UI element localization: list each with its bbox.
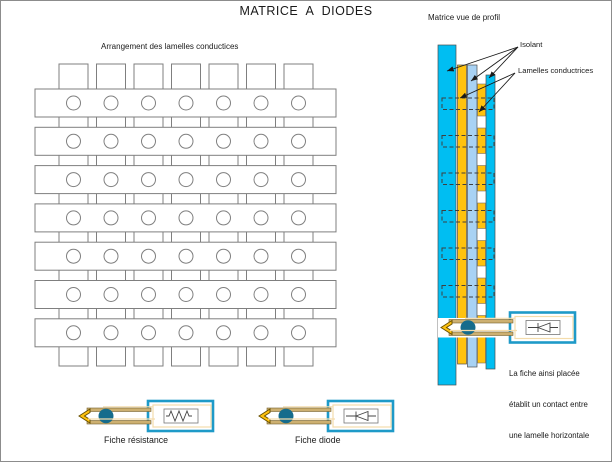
contact-hole bbox=[104, 173, 118, 187]
contact-hole bbox=[217, 134, 231, 148]
contact-hole bbox=[104, 134, 118, 148]
isolant-label: Isolant bbox=[520, 40, 542, 49]
contact-hole bbox=[292, 288, 306, 302]
contact-hole bbox=[254, 96, 268, 110]
lamella-cross-section bbox=[478, 241, 486, 267]
contact-hole bbox=[292, 173, 306, 187]
lamella-cross-section bbox=[478, 278, 486, 304]
pin-tip-icon bbox=[79, 409, 90, 423]
contact-hole bbox=[67, 96, 81, 110]
contact-hole bbox=[67, 173, 81, 187]
contact-band bbox=[99, 409, 114, 423]
contact-hole bbox=[179, 134, 193, 148]
contact-hole bbox=[217, 96, 231, 110]
contact-hole bbox=[67, 134, 81, 148]
lamella-cross-section bbox=[478, 84, 486, 116]
pin-rail bbox=[449, 332, 513, 336]
contact-hole bbox=[292, 249, 306, 263]
contact-hole bbox=[179, 249, 193, 263]
contact-hole bbox=[292, 211, 306, 225]
fiche-diode bbox=[259, 401, 393, 431]
contact-hole bbox=[67, 211, 81, 225]
contact-hole bbox=[179, 173, 193, 187]
contact-hole bbox=[292, 134, 306, 148]
front-view-caption: Arrangement des lamelles conductices bbox=[101, 42, 238, 51]
contact-hole bbox=[254, 249, 268, 263]
pin-rail bbox=[267, 421, 331, 425]
contact-hole bbox=[217, 173, 231, 187]
fiche-resistance bbox=[79, 401, 213, 431]
contact-hole bbox=[217, 211, 231, 225]
contact-hole bbox=[254, 288, 268, 302]
fiche-resistance-label: Fiche résistance bbox=[104, 435, 168, 445]
explanation-line: établit un contact entre bbox=[509, 400, 589, 410]
contact-band bbox=[279, 409, 294, 423]
contact-hole bbox=[179, 326, 193, 340]
explanation-line: une lamelle horizontale bbox=[509, 431, 589, 441]
contact-hole bbox=[142, 288, 156, 302]
contact-hole bbox=[104, 288, 118, 302]
explanation-line: La fiche ainsi placée bbox=[509, 369, 589, 379]
profile-view-title: Matrice vue de profil bbox=[428, 13, 500, 22]
diagram-canvas: MATRICE A DIODES Arrangement des lamelle… bbox=[0, 0, 612, 462]
lamella-cross-section bbox=[478, 203, 486, 229]
pin-tip-icon bbox=[259, 409, 270, 423]
contact-hole bbox=[67, 249, 81, 263]
contact-hole bbox=[142, 173, 156, 187]
contact-hole bbox=[292, 96, 306, 110]
contact-hole bbox=[179, 288, 193, 302]
contact-hole bbox=[142, 249, 156, 263]
contact-hole bbox=[179, 211, 193, 225]
contact-hole bbox=[142, 326, 156, 340]
contact-hole bbox=[104, 211, 118, 225]
contact-hole bbox=[104, 326, 118, 340]
pin-rail bbox=[87, 408, 151, 412]
pin-rail bbox=[449, 320, 513, 324]
lamella-matrix-front bbox=[35, 64, 336, 366]
contact-hole bbox=[254, 134, 268, 148]
contact-hole bbox=[254, 326, 268, 340]
contact-hole bbox=[217, 288, 231, 302]
page-title: MATRICE A DIODES bbox=[1, 4, 611, 18]
pin-rail bbox=[87, 421, 151, 425]
fiche-diode-label: Fiche diode bbox=[295, 435, 340, 445]
contact-hole bbox=[217, 326, 231, 340]
contact-hole bbox=[67, 326, 81, 340]
contact-hole bbox=[254, 211, 268, 225]
lamelles-label: Lamelles conductrices bbox=[518, 66, 593, 75]
lamella-cross-section bbox=[478, 166, 486, 192]
contact-hole bbox=[142, 134, 156, 148]
contact-band bbox=[461, 320, 476, 334]
contact-hole bbox=[142, 211, 156, 225]
contact-hole bbox=[104, 249, 118, 263]
contact-hole bbox=[142, 96, 156, 110]
contact-hole bbox=[104, 96, 118, 110]
pin-rail bbox=[267, 408, 331, 412]
contact-hole bbox=[67, 288, 81, 302]
contact-hole bbox=[217, 249, 231, 263]
explanation-text: La fiche ainsi placée établit un contact… bbox=[509, 348, 589, 462]
contact-hole bbox=[179, 96, 193, 110]
contact-hole bbox=[254, 173, 268, 187]
contact-hole bbox=[292, 326, 306, 340]
lamella-cross-section bbox=[478, 128, 486, 154]
